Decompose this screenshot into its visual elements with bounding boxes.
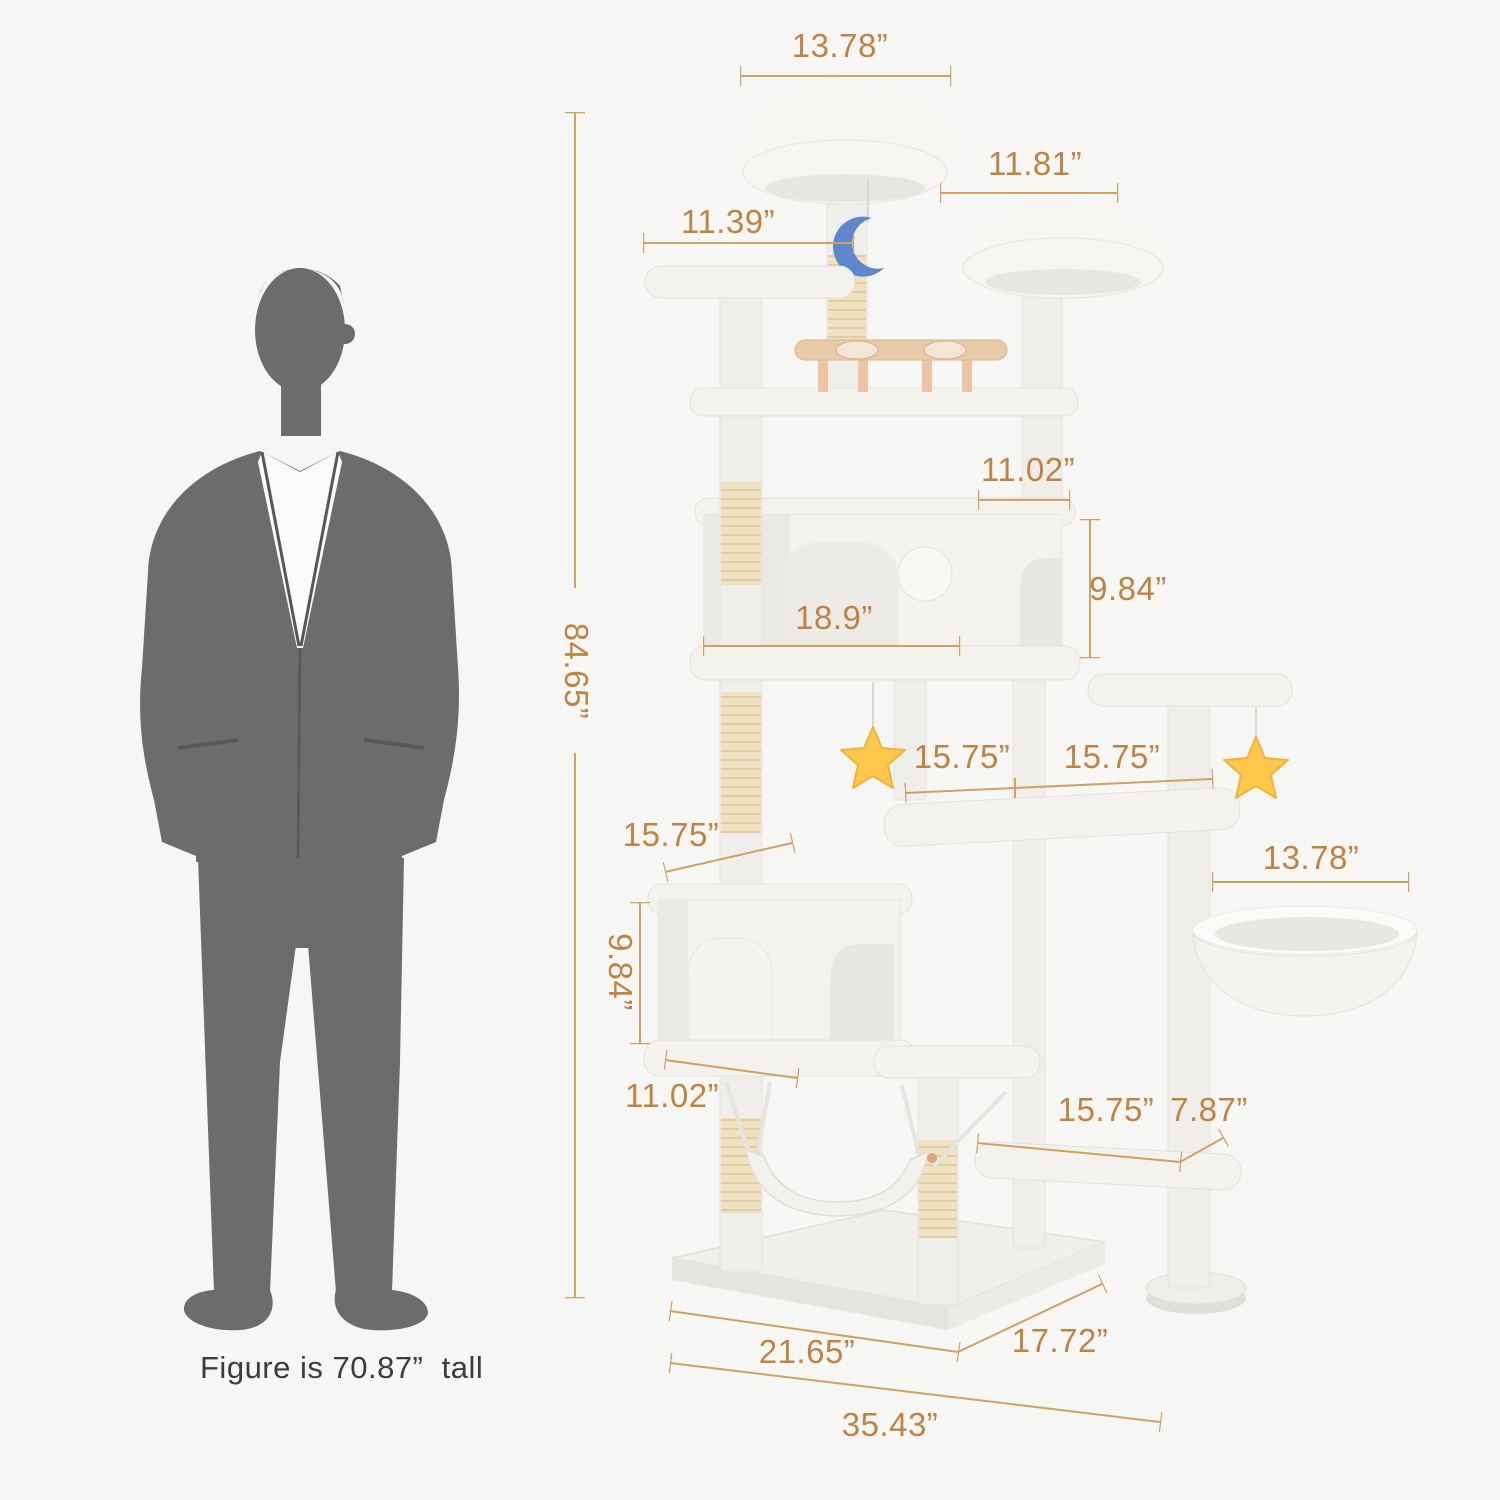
feeder-bowl [924,341,966,359]
dim-label-base-depth: 17.72” [1012,1322,1109,1360]
dim-label-upper-condo-top: 11.02” [981,451,1075,489]
silhouette-head [255,268,345,392]
wooden-feeder [795,340,1007,392]
condo-arch-opening [830,944,894,1048]
hanging-basket [1193,906,1417,1016]
left-top-platform [645,266,855,298]
post-front-left-middle [720,482,762,898]
figure-height-note: Figure is 70.87” tall [200,1350,483,1386]
star-toy-right [1224,706,1288,798]
dim-label-overall-width: 35.43” [842,1406,939,1444]
middle-platform [874,1046,1040,1078]
cloud-perch-top [743,77,952,204]
cloud-perch-second [963,193,1163,298]
hammock [726,1082,1006,1216]
cat-tree-illustration [644,77,1417,1330]
silhouette-leg [198,858,296,1292]
feeder-bowl [836,341,878,359]
silhouette-shoe [184,1290,273,1330]
dim-label-bottom-platform-depth: 7.87” [1170,1091,1248,1129]
dim-label-bottom-platform-width: 15.75” [1058,1091,1155,1129]
dim-label-total-height: 84.65” [557,623,595,720]
upper-condo-platform [690,646,1080,680]
condo-arch-opening [688,938,772,1048]
dim-label-lower-condo-width: 11.02” [625,1077,719,1115]
dim-label-top-cloud-width: 13.78” [792,27,889,65]
upper-right-platform [1088,674,1292,706]
dim-label-base-width: 21.65” [759,1333,856,1371]
dim-label-upper-condo-width: 18.9” [795,599,873,637]
dim-label-basket-width: 13.78” [1263,839,1360,877]
dim-label-corner-platform-depth: 15.75” [1064,738,1161,776]
human-silhouette-for-scale [140,268,459,1330]
dim-label-lower-condo-height: 9.84” [601,933,639,1011]
cat-tree-dimension-diagram: 13.78” 11.81” 11.39” 84.65” 11.02” 9.84”… [0,0,1500,1500]
dim-label-left-platform-width: 11.39” [681,203,775,241]
condo-round-hole [898,547,952,601]
silhouette-leg [308,858,404,1292]
dim-label-corner-platform-width: 15.75” [914,738,1011,776]
dim-label-second-cloud-width: 11.81” [988,145,1082,183]
lower-condo [644,884,916,1076]
post-middle-upper [894,660,926,800]
dim-label-upper-condo-height: 9.84” [1089,570,1167,608]
silhouette-shoe [335,1290,428,1330]
large-shelf [690,388,1078,416]
dim-label-lower-condo-top: 15.75” [623,816,720,854]
silhouette-neck [281,378,321,436]
